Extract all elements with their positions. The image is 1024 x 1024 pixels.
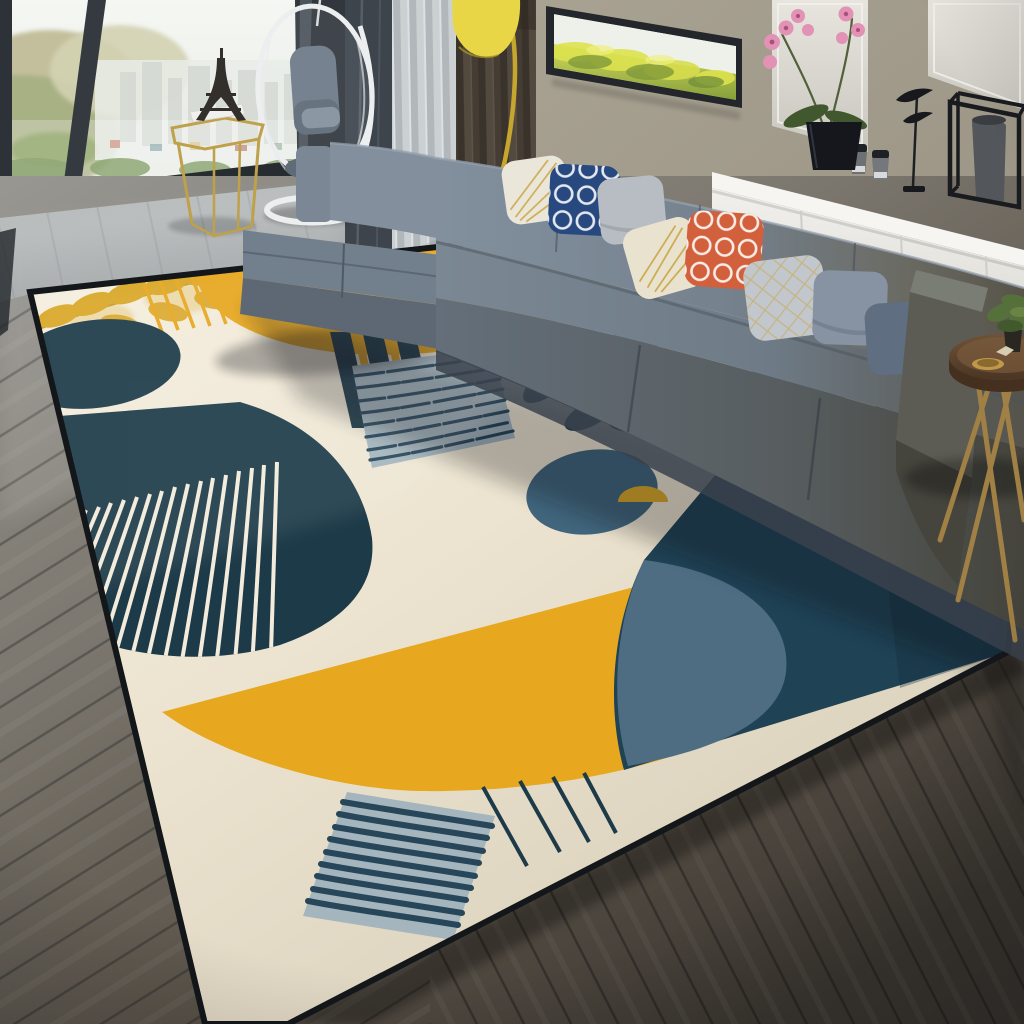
living-room-photo	[0, 0, 1024, 1024]
vignette	[0, 0, 1024, 1024]
scene-canvas	[0, 0, 1024, 1024]
